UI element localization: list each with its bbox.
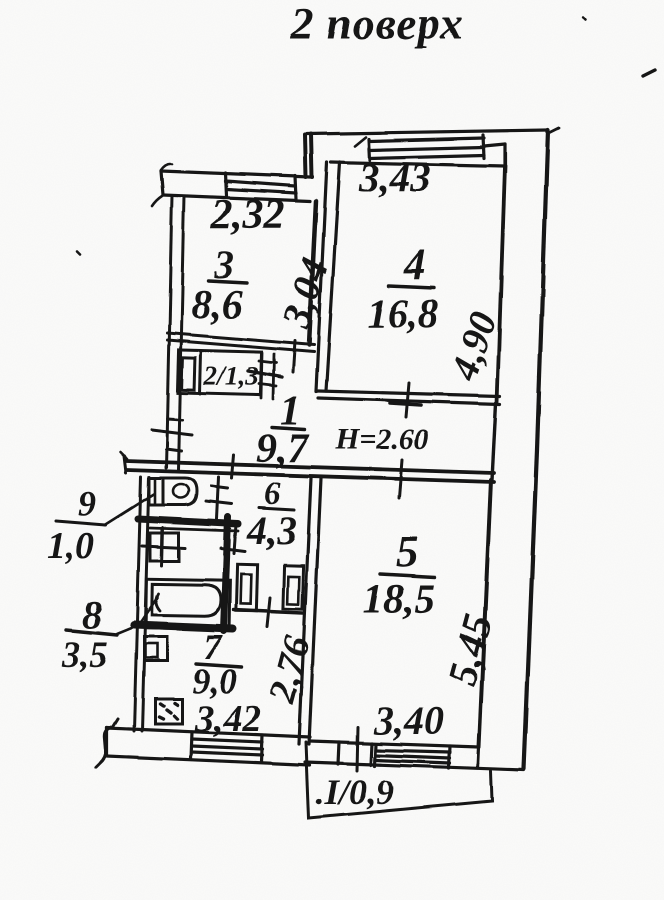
svg-text:18,5: 18,5 [362,577,436,623]
svg-text:2/1,3: 2/1,3 [203,361,259,391]
svg-text:4: 4 [403,242,426,289]
svg-text:.І/0,9: .І/0,9 [316,772,394,812]
svg-text:2,32: 2,32 [210,192,285,238]
svg-text:9,7: 9,7 [256,426,311,472]
svg-text:16,8: 16,8 [367,290,439,336]
svg-text:4,3: 4,3 [246,508,297,553]
svg-text:8,6: 8,6 [191,281,243,327]
svg-text:3,5: 3,5 [61,635,108,676]
svg-text:3,42: 3,42 [194,698,262,740]
svg-text:9,0: 9,0 [192,661,237,701]
svg-text:3,40: 3,40 [373,698,444,743]
svg-text:H=2.60: H=2.60 [335,423,429,456]
svg-text:3,43: 3,43 [358,154,431,200]
svg-text:5: 5 [396,527,418,576]
svg-text:9: 9 [78,484,96,524]
svg-text:6: 6 [264,476,281,512]
svg-text:1,0: 1,0 [47,525,95,567]
svg-text:2 поверх: 2 поверх [290,0,464,49]
